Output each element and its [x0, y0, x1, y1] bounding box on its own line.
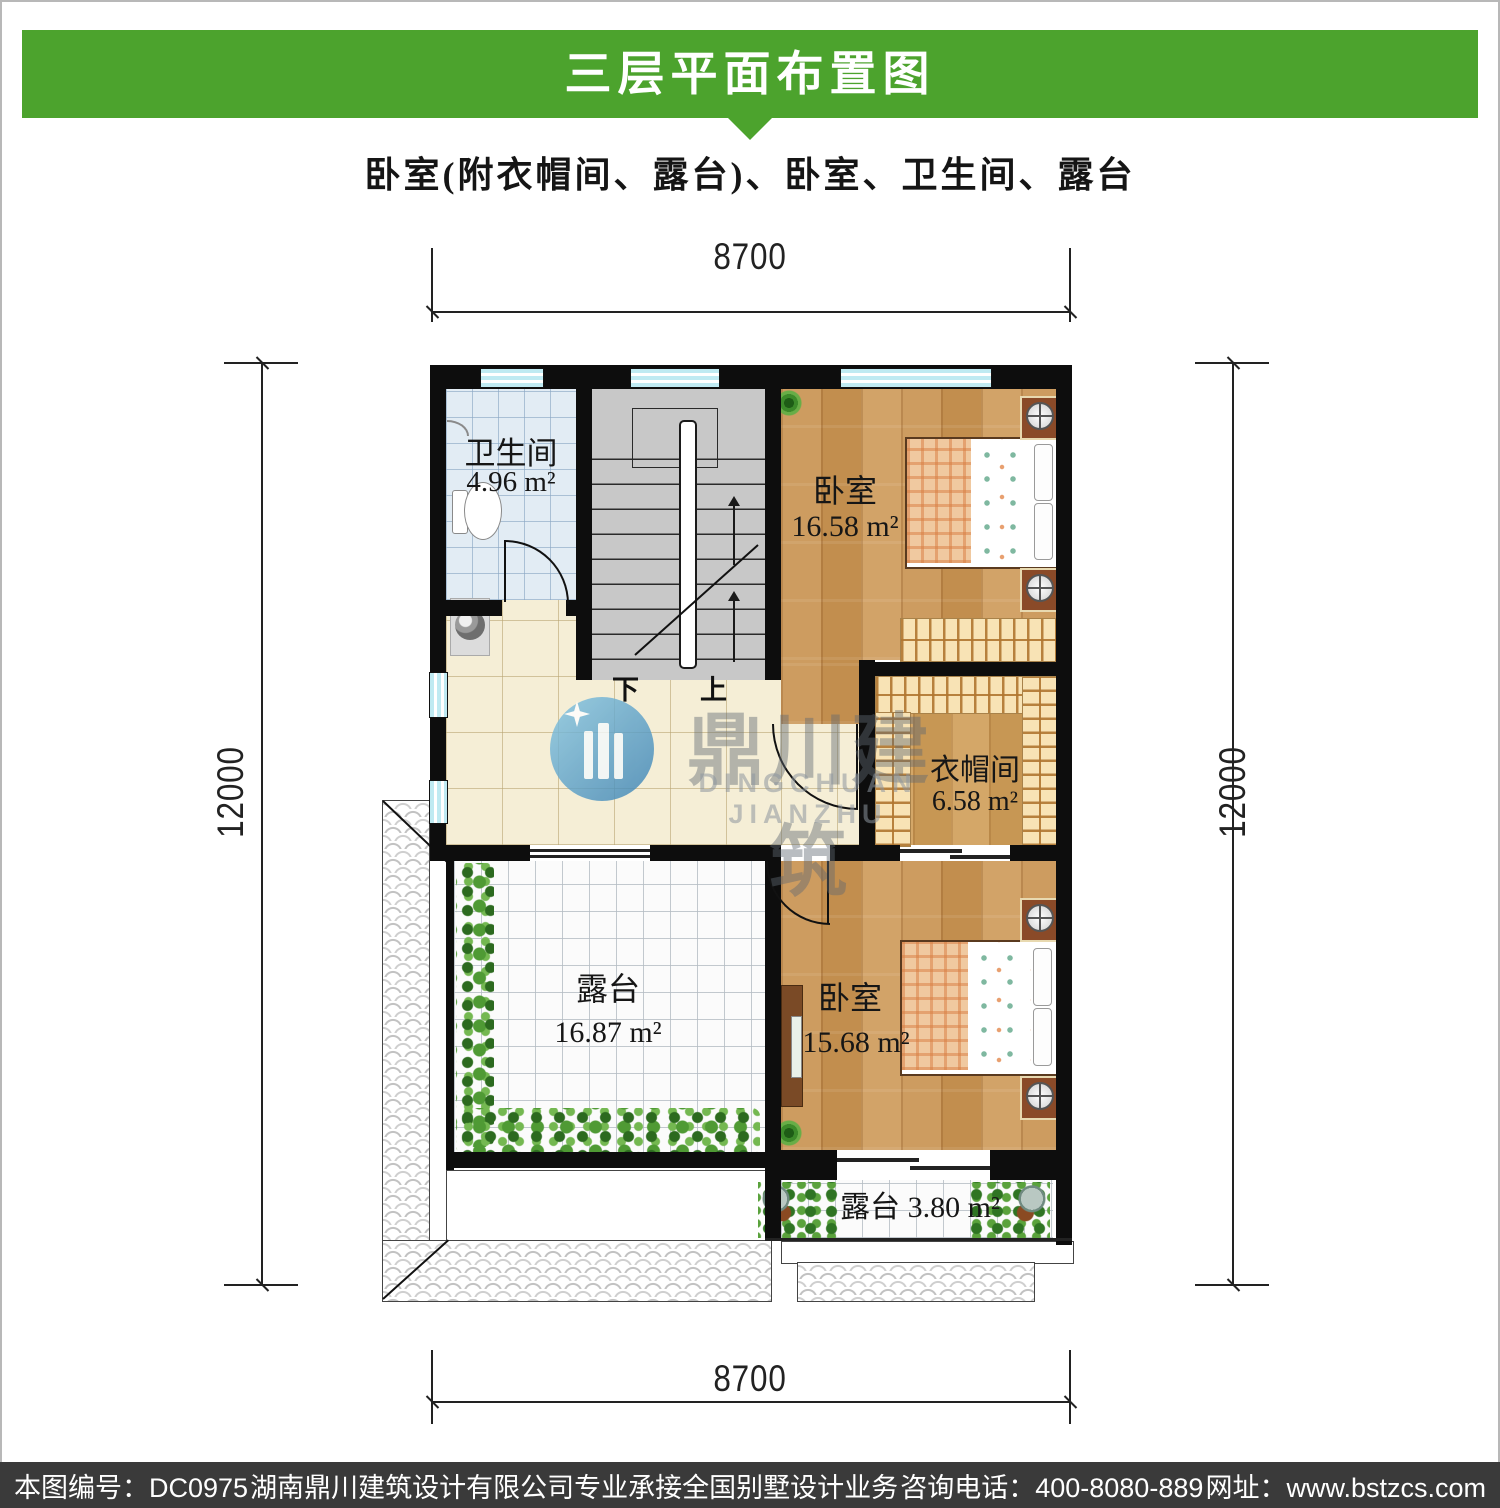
dimension-left: 12000: [210, 741, 250, 843]
terrace-small-parapet: [765, 1238, 1072, 1241]
stair-up-arrow: [728, 496, 740, 506]
stair-stringer: [679, 420, 697, 669]
dimension-line-left: [261, 363, 263, 1285]
bed-sheet: [971, 439, 1033, 563]
window-hallway-left: [429, 672, 448, 718]
closet-area: 6.58 m²: [915, 786, 1035, 818]
bedroom-bottom-area: 15.68 m²: [784, 1026, 928, 1060]
terrace-parapet-bottom: [446, 1152, 781, 1168]
floor-plan-page: 三层平面布置图 卧室(附衣帽间、露台)、卧室、卫生间、露台 8700 8700 …: [0, 0, 1500, 1508]
pillow: [1034, 503, 1053, 560]
eave-band-bottom: [446, 1170, 772, 1242]
sliding-window-terrace: [530, 855, 650, 858]
pillow: [1033, 1008, 1052, 1066]
sliding-door-terrace-small: [837, 1158, 919, 1162]
wall-right: [1056, 365, 1072, 1245]
wall-bathroom-bottom: [430, 600, 502, 616]
footer-sheet-no: 本图编号：DC0975: [14, 1466, 248, 1505]
window-hallway-left: [429, 780, 448, 824]
stair-landing-outline: [632, 408, 718, 468]
window-bathroom: [480, 368, 544, 388]
door-leaf-bathroom: [504, 540, 506, 602]
logo-building-bar: [614, 733, 623, 779]
bedroom-top-label: 卧室: [783, 466, 907, 512]
dimension-top: 8700: [665, 236, 835, 278]
terrace-parapet-left: [446, 845, 454, 1170]
wall-bathroom-bottom: [566, 600, 592, 616]
wardrobe-top-bedroom: [900, 618, 1058, 662]
bed-blanket: [907, 439, 971, 563]
eave-band-small-terrace: [781, 1241, 1074, 1264]
stair-up-arrow: [728, 591, 740, 601]
roof-tiles-left: [382, 800, 430, 1302]
bedroom-bottom-label: 卧室: [788, 973, 912, 1019]
terrace-small-name: 露台: [840, 1191, 900, 1224]
dimension-line-top: [432, 311, 1070, 313]
nightstand: [1020, 1076, 1060, 1120]
nightstand: [1020, 568, 1060, 612]
wall-hall-terrace: [430, 845, 530, 861]
terrace-small-area: 3.80 m²: [908, 1191, 1000, 1224]
dimension-line-right: [1232, 363, 1234, 1285]
sliding-window-terrace: [530, 849, 650, 852]
wall-closet-bottom: [1010, 845, 1056, 861]
wall-bedroom-bottom-bottom: [990, 1150, 1072, 1180]
watermark-logo-icon: [550, 697, 654, 801]
bed-sheet: [968, 942, 1031, 1070]
bathroom-area: 4.96 m²: [431, 466, 591, 499]
terrace-plants-bottom: [456, 1108, 760, 1154]
nightstand: [1020, 396, 1060, 440]
terrace-label: 露台: [548, 964, 668, 1010]
sliding-door-terrace-small: [910, 1166, 990, 1170]
title-banner: 三层平面布置图: [22, 30, 1478, 118]
stair-direction-line: [733, 505, 735, 565]
roof-tiles-bottom: [382, 1240, 772, 1302]
pillow: [1033, 948, 1052, 1006]
roof-tiles-small-terrace: [797, 1262, 1035, 1302]
pillow: [1034, 444, 1053, 501]
window-stairwell: [630, 368, 720, 388]
banner-pointer-triangle: [728, 118, 772, 140]
lamp-icon: [1026, 1082, 1054, 1110]
closet-label: 衣帽间: [895, 745, 1055, 789]
terrace-small-wall-left: [765, 1180, 781, 1240]
nightstand: [1020, 898, 1060, 942]
logo-building-bar: [598, 723, 609, 779]
wall-closet-top: [859, 662, 1056, 676]
stair-direction-line: [733, 600, 735, 662]
footer-company: 湖南鼎川建筑设计有限公司专业承接全国别墅设计业务: [250, 1466, 898, 1505]
dimension-bottom: 8700: [665, 1358, 835, 1400]
footer-bar: 本图编号：DC0975 湖南鼎川建筑设计有限公司专业承接全国别墅设计业务 咨询电…: [0, 1462, 1500, 1508]
lamp-icon: [1026, 574, 1054, 602]
lamp-icon: [1026, 402, 1054, 430]
stair-down-label: 下: [612, 668, 639, 707]
lamp-icon: [1026, 904, 1054, 932]
terrace-plants-left: [456, 863, 494, 1147]
extension-line: [431, 1350, 433, 1424]
extension-line: [1069, 1350, 1071, 1424]
dimension-line-bottom: [432, 1401, 1070, 1403]
bed-top-bedroom: [905, 437, 1060, 569]
footer-website: 网址：www.bstzcs.com: [1205, 1466, 1486, 1505]
footer-phone: 咨询电话：400-8080-889: [900, 1466, 1203, 1505]
logo-building-bar: [584, 731, 593, 779]
page-subtitle: 卧室(附衣帽间、露台)、卧室、卫生间、露台: [0, 146, 1500, 198]
page-title: 三层平面布置图: [22, 30, 1478, 118]
terrace-area: 16.87 m²: [538, 1016, 678, 1050]
window-bedroom-top: [840, 368, 992, 388]
stair-up-label: 上: [700, 668, 727, 707]
bedroom-top-area: 16.58 m²: [773, 510, 917, 544]
terrace-small-label: 露台 3.80 m²: [795, 1182, 1045, 1226]
